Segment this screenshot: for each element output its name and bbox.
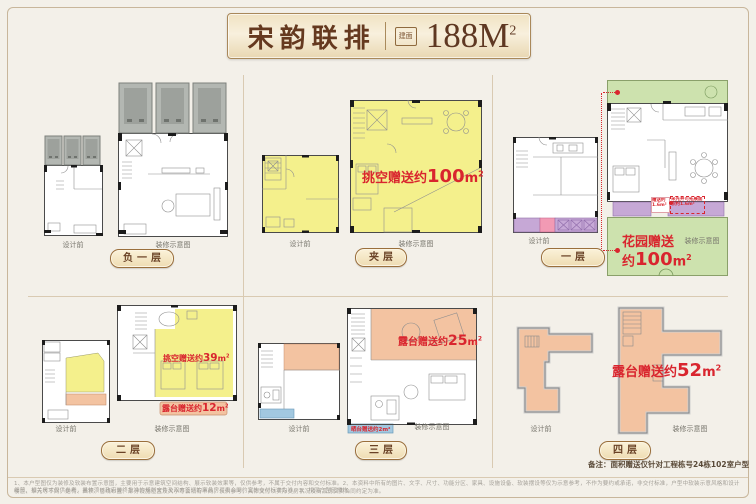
floorplan-f3-before xyxy=(258,343,340,420)
note-text: 备注：面积赠送仅针对工程栋号24栋102室户型 xyxy=(588,459,749,470)
label-f3-before: 设计前 xyxy=(289,424,310,434)
red-dotted-h-top xyxy=(603,92,615,93)
red-dot-bottom xyxy=(615,248,620,253)
floor-badge-f2: 二层 xyxy=(101,441,155,460)
annotation-f1-gift: 赠送约1.6m² xyxy=(651,197,670,213)
divider-vertical-2 xyxy=(492,75,493,468)
label-mezz-after: 装修示意图 xyxy=(399,239,434,249)
red-dotted-h-bottom xyxy=(603,250,615,251)
floor-badge-b1: 负一层 xyxy=(110,249,174,268)
annotation-f1-lightwell: 采光井可拓展面积约1.6m² xyxy=(670,196,705,214)
red-dotted-vertical xyxy=(601,93,602,251)
divider-vertical-1 xyxy=(243,75,244,468)
annotation-f1-garden: 花园赠送 约100m2 xyxy=(622,235,692,269)
annotation-f2-void: 挑空赠送约39m2 xyxy=(163,352,229,364)
label-f4-before: 设计前 xyxy=(531,424,552,434)
label-f4-after: 装修示意图 xyxy=(673,424,708,434)
floor-badge-f4: 四层 xyxy=(599,441,651,460)
label-f1-after: 装修示意图 xyxy=(685,236,720,246)
red-dot-top xyxy=(615,90,620,95)
floorplan-f1-before xyxy=(513,137,598,233)
label-b1-before: 设计前 xyxy=(63,240,84,250)
floorplan-mezz-before xyxy=(262,155,339,233)
floor-badge-mezz: 夹层 xyxy=(355,248,407,267)
area-seal-icon: 建面 xyxy=(395,27,417,46)
label-f2-before: 设计前 xyxy=(56,424,77,434)
title-divider xyxy=(385,22,386,50)
floor-badge-f3: 三层 xyxy=(355,441,407,460)
floor-badge-f1: 一层 xyxy=(541,248,605,267)
disclaimer-line-2: 楼层、单元等不同，结构、面积、管线布置、部分设施位置及大小等会稍有不同，仅供参考… xyxy=(14,489,744,496)
divider-horizontal-footer xyxy=(8,477,748,478)
label-f1-before: 设计前 xyxy=(529,236,550,246)
floorplan-f4-before xyxy=(515,320,595,415)
floorplan-b1-before xyxy=(44,135,103,237)
divider-horizontal-rows xyxy=(28,296,728,297)
page-title: 宋韵联排 xyxy=(242,18,376,55)
area-value: 188M2 xyxy=(426,16,517,56)
label-mezz-before: 设计前 xyxy=(290,239,311,249)
label-f3-after: 装修示意图 xyxy=(415,422,450,432)
annotation-f2-terrace: 露台赠送约12m2 xyxy=(162,402,228,414)
floorplan-f3-after xyxy=(347,308,477,434)
annotation-f4-terrace: 露台赠送约52m2 xyxy=(612,360,721,381)
annotation-mezz-void: 挑空赠送约100m2 xyxy=(362,166,484,187)
label-f2-after: 装修示意图 xyxy=(155,424,190,434)
annotation-f3-terrace: 露台赠送约25m2 xyxy=(398,333,482,349)
annotation-f3-sundeck: 晒台赠送约2m² xyxy=(351,425,390,433)
title-banner: 宋韵联排 建面 188M2 xyxy=(227,13,531,59)
red-dot-lightwell xyxy=(669,201,673,205)
floorplan-b1-after xyxy=(118,82,228,238)
floorplan-f2-before xyxy=(42,340,110,423)
